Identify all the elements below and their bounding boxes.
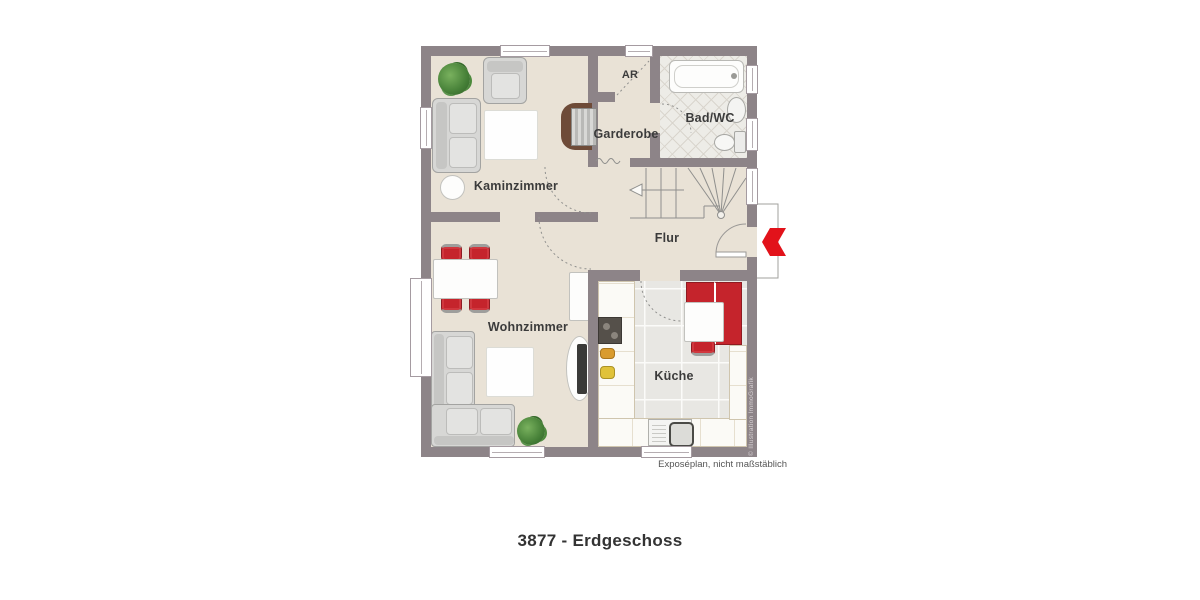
armchair	[483, 57, 527, 104]
window-top-kaminzimmer	[500, 45, 550, 57]
wall-kaminzimmer-wohnzimmer-left	[431, 212, 500, 222]
side-table-round	[440, 175, 465, 200]
plan-caption: 3877 - Erdgeschoss	[517, 531, 682, 551]
watermark-text: © Illustration ImmoGrafik	[748, 377, 755, 456]
room-label-flur: Flur	[655, 231, 679, 245]
window-left-kaminzimmer	[420, 107, 432, 149]
plant-icon	[517, 417, 545, 445]
room-label-kueche: Küche	[654, 369, 693, 383]
floorplan-canvas: Kaminzimmer Garderobe AR Bad/WC Flur Woh…	[0, 0, 1200, 600]
entrance-arrow-icon	[762, 228, 786, 256]
dining-table	[433, 259, 498, 299]
wall-bad-left-upper	[650, 56, 660, 103]
stove-cooktop	[598, 317, 622, 344]
plant-icon	[438, 63, 470, 95]
wall-wohnzimmer-kueche	[588, 270, 598, 447]
window-top-ar	[625, 45, 653, 57]
rug	[486, 347, 534, 397]
entrance-doorway	[747, 227, 757, 257]
room-label-bad-wc: Bad/WC	[685, 111, 734, 125]
corner-sofa-horizontal	[431, 404, 515, 447]
kitchen-table	[684, 302, 724, 342]
entrance-niche-outline	[757, 204, 778, 278]
window-bottom-kueche	[641, 446, 692, 458]
room-label-ar: AR	[622, 69, 638, 81]
tv	[577, 344, 587, 394]
room-label-kaminzimmer: Kaminzimmer	[474, 179, 558, 193]
room-label-garderobe: Garderobe	[593, 127, 658, 141]
window-right-bad-1	[746, 65, 758, 94]
kitchen-counter-right	[729, 345, 747, 420]
wall-bad-bottom	[630, 158, 747, 167]
toilet-bowl	[714, 134, 735, 151]
window-right-stairs	[746, 168, 758, 205]
wall-kueche-top-left	[598, 270, 640, 281]
window-bottom-wohnzimmer	[489, 446, 545, 458]
disclaimer-text: Exposéplan, nicht maßstäblich	[658, 459, 787, 470]
toilet-tank	[734, 131, 746, 153]
wall-ar-stub	[593, 92, 615, 102]
kitchen-sink	[648, 419, 692, 446]
rug	[484, 110, 538, 160]
wall-kueche-top-right	[680, 270, 747, 281]
wall-kaminzimmer-wohnzimmer-right	[535, 212, 598, 222]
bathtub	[669, 60, 744, 93]
window-left-wohnzimmer	[410, 278, 432, 377]
wall-bottom	[421, 447, 757, 457]
window-right-bad-2	[746, 118, 758, 151]
fruit-bowl	[600, 366, 615, 379]
sofa	[432, 98, 481, 173]
wall-top	[421, 46, 757, 56]
fruit-bowl	[600, 348, 615, 359]
room-label-wohnzimmer: Wohnzimmer	[488, 320, 568, 334]
